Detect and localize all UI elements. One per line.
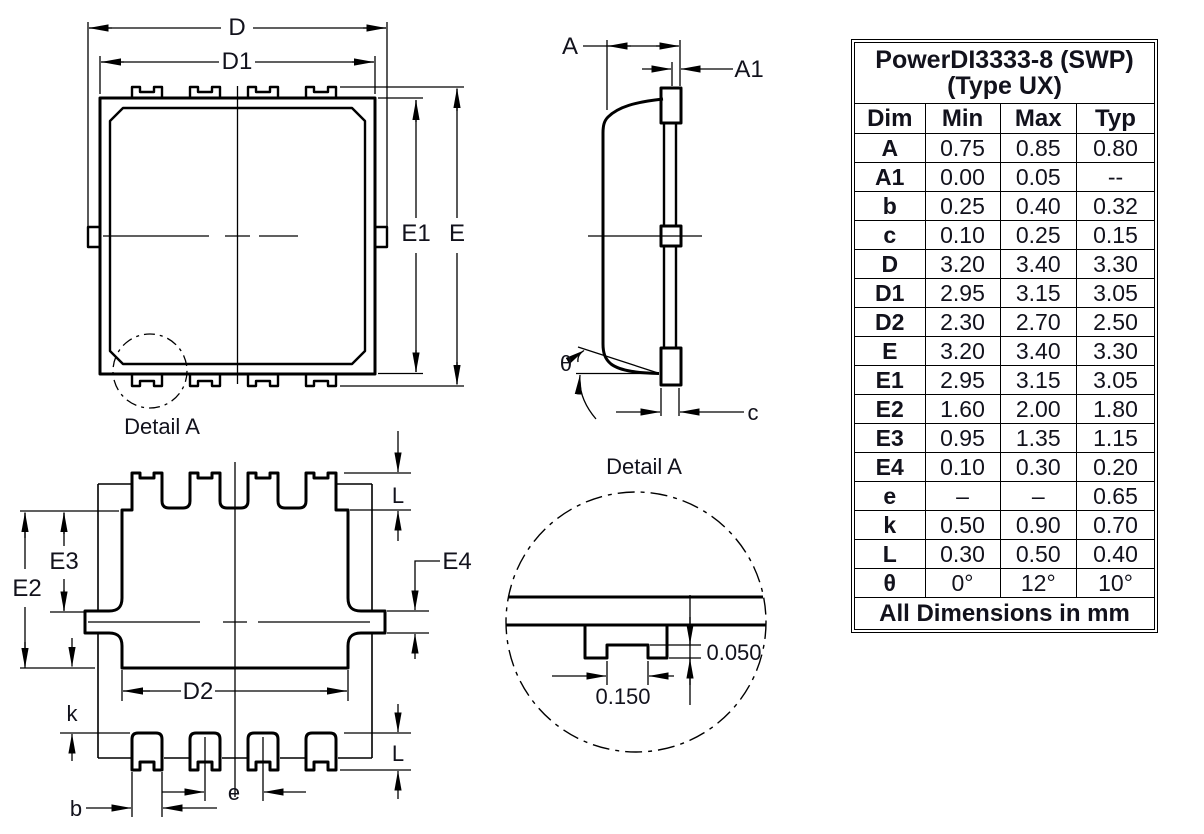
table-row: b0.250.400.32 (855, 192, 1155, 221)
table-row: D22.302.702.50 (855, 308, 1155, 337)
table-row: L0.300.500.40 (855, 540, 1155, 569)
dimension-c: c (616, 388, 759, 425)
dim-label-E4: E4 (442, 548, 471, 575)
col-header-max: Max (1000, 104, 1077, 134)
value-cell: 0.10 (925, 453, 1000, 482)
dim-label-standoff: 0.050 (706, 640, 761, 665)
value-cell: 0.65 (1077, 482, 1155, 511)
dim-label-D1: D1 (222, 48, 253, 75)
value-cell: 2.70 (1000, 308, 1077, 337)
dim-cell: e (855, 482, 926, 511)
value-cell: 0.00 (925, 163, 1000, 192)
dimension-L-top: L (344, 431, 411, 541)
dimension-E2: E2 (12, 511, 119, 668)
col-header-typ: Typ (1077, 104, 1155, 134)
table-row: E30.951.351.15 (855, 424, 1155, 453)
dim-cell: E2 (855, 395, 926, 424)
bottom-view: E2 E3 k D2 b (12, 431, 471, 821)
top-view: D D1 E1 E Detail A (88, 14, 465, 439)
value-cell: 3.05 (1077, 366, 1155, 395)
value-cell: 3.30 (1077, 250, 1155, 279)
value-cell: 0.50 (1000, 540, 1077, 569)
table-row: c0.100.250.15 (855, 221, 1155, 250)
value-cell: 1.60 (925, 395, 1000, 424)
value-cell: 0.30 (925, 540, 1000, 569)
dim-cell: D2 (855, 308, 926, 337)
value-cell: 2.95 (925, 279, 1000, 308)
detail-a-view: Detail A 0.050 0.150 (506, 454, 766, 752)
dim-cell: θ (855, 569, 926, 598)
table-row: k0.500.900.70 (855, 511, 1155, 540)
value-cell: 2.50 (1077, 308, 1155, 337)
left-side-tab (88, 227, 100, 247)
dimension-b: b (70, 772, 217, 821)
detail-a-reference-label: Detail A (124, 414, 200, 439)
value-cell: 0.40 (1077, 540, 1155, 569)
dim-label-notch-width: 0.150 (595, 684, 650, 709)
value-cell: 3.15 (1000, 279, 1077, 308)
table-footer-row: All Dimensions in mm (855, 598, 1155, 630)
value-cell: 3.20 (925, 250, 1000, 279)
value-cell: 0.70 (1077, 511, 1155, 540)
dim-label-E1: E1 (401, 220, 430, 247)
value-cell: 3.20 (925, 337, 1000, 366)
dim-label-theta: θ (560, 351, 572, 376)
value-cell: 0.05 (1000, 163, 1077, 192)
value-cell: 0.85 (1000, 134, 1077, 163)
value-cell: 0.75 (925, 134, 1000, 163)
dimension-k: k (60, 638, 130, 761)
package-drawing-page: D D1 E1 E Detail A (0, 0, 1204, 834)
dim-label-b: b (70, 796, 82, 821)
value-cell: 0.15 (1077, 221, 1155, 250)
dim-cell: D (855, 250, 926, 279)
dim-cell: E1 (855, 366, 926, 395)
table-title-row: PowerDI3333-8 (SWP) (Type UX) (855, 43, 1155, 104)
dim-label-L-top: L (392, 483, 404, 508)
dim-cell: E3 (855, 424, 926, 453)
value-cell: 0.10 (925, 221, 1000, 250)
value-cell: 10° (1077, 569, 1155, 598)
dim-cell: E (855, 337, 926, 366)
detail-a-circle (506, 492, 766, 752)
table-row: A10.000.05-- (855, 163, 1155, 192)
dimension-table: PowerDI3333-8 (SWP) (Type UX) Dim Min Ma… (851, 39, 1158, 633)
value-cell: 0.95 (925, 424, 1000, 453)
value-cell: 2.30 (925, 308, 1000, 337)
table-title-line1: PowerDI3333-8 (SWP) (855, 47, 1154, 73)
dim-cell: D1 (855, 279, 926, 308)
dimension-A1: A1 (642, 56, 764, 86)
centerlines (103, 86, 298, 384)
dimension-theta: θ (560, 347, 658, 419)
table-row: D3.203.403.30 (855, 250, 1155, 279)
value-cell: 1.80 (1077, 395, 1155, 424)
table-header-row: Dim Min Max Typ (855, 104, 1155, 134)
value-cell: 0.25 (1000, 221, 1077, 250)
dim-label-E: E (449, 220, 465, 247)
value-cell: 0.50 (925, 511, 1000, 540)
value-cell: 0.40 (1000, 192, 1077, 221)
detail-a-title: Detail A (606, 454, 682, 479)
value-cell: 3.40 (1000, 337, 1077, 366)
value-cell: 0° (925, 569, 1000, 598)
value-cell: 0.32 (1077, 192, 1155, 221)
dim-label-e-pitch: e (228, 780, 240, 805)
table-row: A0.750.850.80 (855, 134, 1155, 163)
bottom-centerlines (88, 462, 370, 797)
dimension-notch-width: 0.150 (552, 661, 674, 709)
dim-cell: L (855, 540, 926, 569)
value-cell: – (925, 482, 1000, 511)
table-row: E40.100.300.20 (855, 453, 1155, 482)
col-header-dim: Dim (855, 104, 926, 134)
dim-label-D2: D2 (183, 678, 214, 705)
table-row: θ0°12°10° (855, 569, 1155, 598)
value-cell: 0.30 (1000, 453, 1077, 482)
dim-cell: c (855, 221, 926, 250)
table-title-line2: (Type UX) (855, 73, 1154, 99)
value-cell: 0.90 (1000, 511, 1077, 540)
value-cell: 1.15 (1077, 424, 1155, 453)
value-cell: 3.30 (1077, 337, 1155, 366)
table-row: e––0.65 (855, 482, 1155, 511)
dimension-E4: E4 (387, 548, 472, 659)
dim-cell: A (855, 134, 926, 163)
detail-lead-profile (585, 625, 667, 658)
dim-cell: b (855, 192, 926, 221)
detail-a-reference-circle (113, 334, 187, 408)
table-row: E3.203.403.30 (855, 337, 1155, 366)
value-cell: 3.15 (1000, 366, 1077, 395)
table-title: PowerDI3333-8 (SWP) (Type UX) (855, 43, 1155, 104)
value-cell: – (1000, 482, 1077, 511)
value-cell: 1.35 (1000, 424, 1077, 453)
table-row: E21.602.001.80 (855, 395, 1155, 424)
value-cell: 3.05 (1077, 279, 1155, 308)
dim-label-E3: E3 (49, 548, 78, 575)
dim-label-A1: A1 (734, 56, 763, 83)
table-row: E12.953.153.05 (855, 366, 1155, 395)
dim-cell: A1 (855, 163, 926, 192)
dim-cell: k (855, 511, 926, 540)
dimension-L-bottom: L (340, 704, 411, 799)
side-view: A A1 θ c (560, 33, 764, 425)
value-cell: 0.80 (1077, 134, 1155, 163)
col-header-min: Min (925, 104, 1000, 134)
dim-label-k: k (67, 701, 79, 726)
bottom-terminals (132, 733, 336, 770)
right-side-tab (375, 227, 387, 247)
value-cell: 0.25 (925, 192, 1000, 221)
dim-label-A: A (562, 33, 578, 60)
value-cell: 2.00 (1000, 395, 1077, 424)
dim-cell: E4 (855, 453, 926, 482)
dim-table-body: A0.750.850.80A10.000.05--b0.250.400.32c0… (855, 134, 1155, 598)
value-cell: -- (1077, 163, 1155, 192)
table-footer: All Dimensions in mm (855, 598, 1155, 630)
dimension-e-pitch: e (162, 737, 306, 805)
value-cell: 12° (1000, 569, 1077, 598)
dim-label-L-bottom: L (392, 741, 404, 766)
table-row: D12.953.153.05 (855, 279, 1155, 308)
value-cell: 0.20 (1077, 453, 1155, 482)
dimension-E3: E3 (49, 513, 84, 613)
value-cell: 3.40 (1000, 250, 1077, 279)
dim-label-E2: E2 (12, 575, 41, 602)
dim-label-c: c (748, 400, 759, 425)
dim-label-D: D (228, 14, 245, 41)
value-cell: 2.95 (925, 366, 1000, 395)
